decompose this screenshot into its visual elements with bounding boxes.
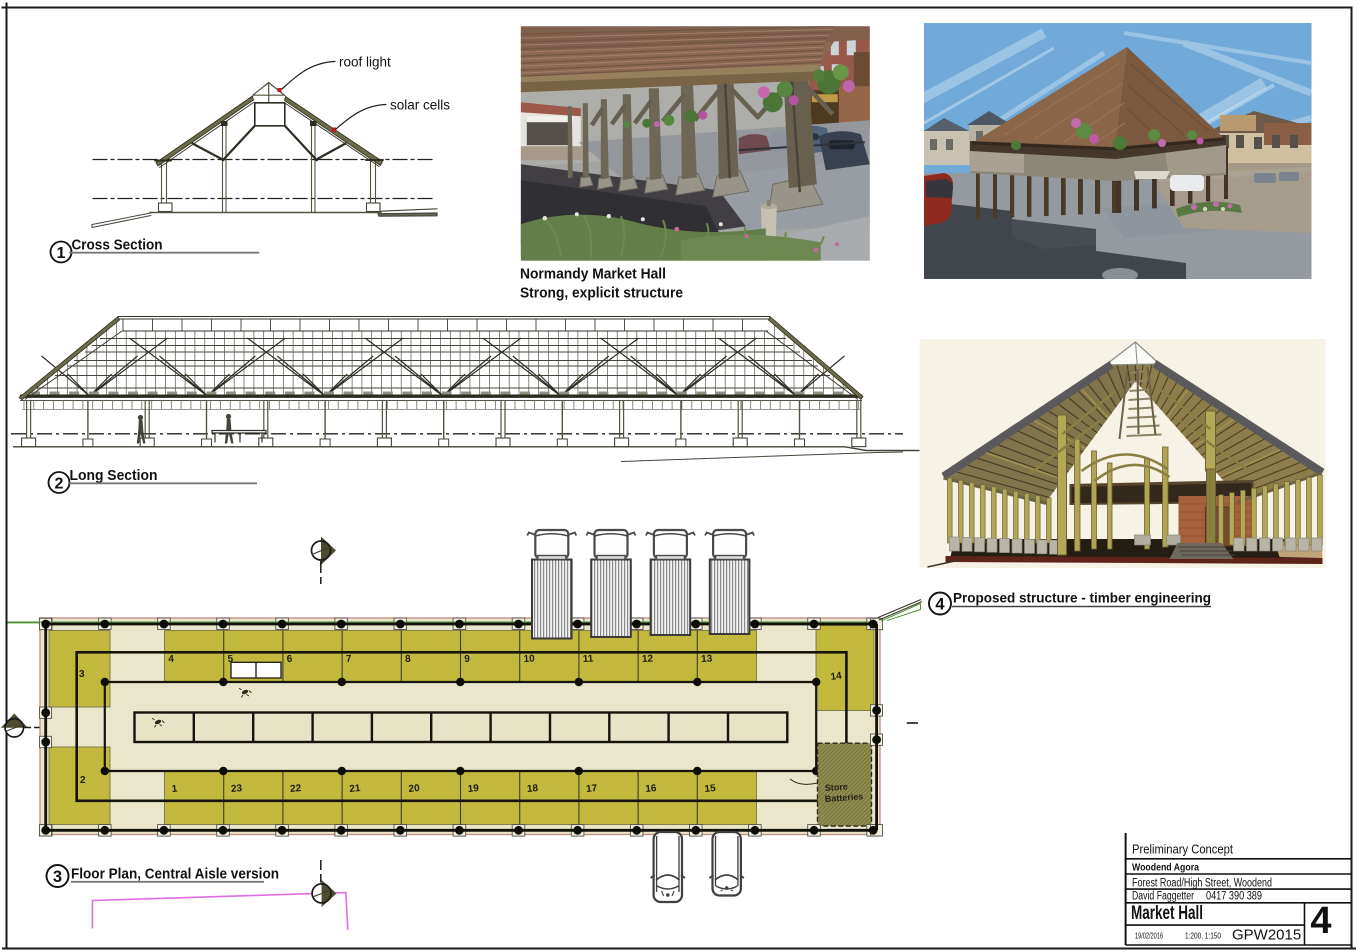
svg-text:4: 4 [168,654,175,665]
svg-text:Floor Plan, Central Aisle vers: Floor Plan, Central Aisle version [71,867,279,883]
svg-text:5: 5 [227,654,234,665]
svg-text:21: 21 [349,783,361,795]
svg-text:1: 1 [57,245,66,262]
svg-text:18: 18 [527,783,539,795]
svg-text:20: 20 [408,783,420,795]
svg-text:Market Hall: Market Hall [1131,903,1203,924]
svg-text:22: 22 [290,783,302,795]
svg-text:10: 10 [523,653,535,665]
svg-text:Forest Road/High Street, Woode: Forest Road/High Street, Woodend [1132,877,1272,889]
svg-text:9: 9 [464,654,471,665]
svg-text:3: 3 [79,669,85,680]
svg-text:GPW2015: GPW2015 [1232,927,1301,944]
svg-text:1:200, 1:150: 1:200, 1:150 [1185,931,1221,941]
svg-text:23: 23 [231,783,243,795]
svg-text:14: 14 [830,670,843,683]
svg-text:0417 390 389: 0417 390 389 [1206,890,1262,902]
svg-text:19: 19 [467,783,479,795]
svg-text:11: 11 [582,653,594,665]
svg-text:16: 16 [645,783,657,795]
svg-text:4: 4 [1310,900,1331,942]
svg-text:Long Section: Long Section [70,468,158,484]
svg-text:Proposed structure - timber en: Proposed structure - timber engineering [953,590,1211,606]
svg-text:Strong, explicit structure: Strong, explicit structure [520,286,683,302]
svg-text:Normandy Market Hall: Normandy Market Hall [520,267,666,283]
svg-text:13: 13 [701,653,713,665]
svg-text:2: 2 [80,775,86,786]
svg-text:17: 17 [586,783,598,795]
svg-text:19/02/2016: 19/02/2016 [1135,931,1163,941]
svg-text:Preliminary Concept: Preliminary Concept [1132,842,1233,857]
svg-text:Cross Section: Cross Section [72,238,163,254]
svg-text:Store: Store [824,781,848,793]
svg-text:Woodend Agora: Woodend Agora [1132,862,1199,874]
svg-text:solar cells: solar cells [390,98,450,113]
svg-text:2: 2 [55,476,64,493]
svg-text:4: 4 [935,596,945,614]
svg-text:7: 7 [346,654,353,665]
svg-text:15: 15 [704,783,716,795]
svg-text:8: 8 [405,654,412,665]
svg-text:David Faggetter: David Faggetter [1132,890,1194,902]
svg-text:roof light: roof light [339,55,391,70]
svg-text:3: 3 [53,868,62,886]
svg-text:12: 12 [642,653,654,665]
svg-text:6: 6 [286,654,293,665]
